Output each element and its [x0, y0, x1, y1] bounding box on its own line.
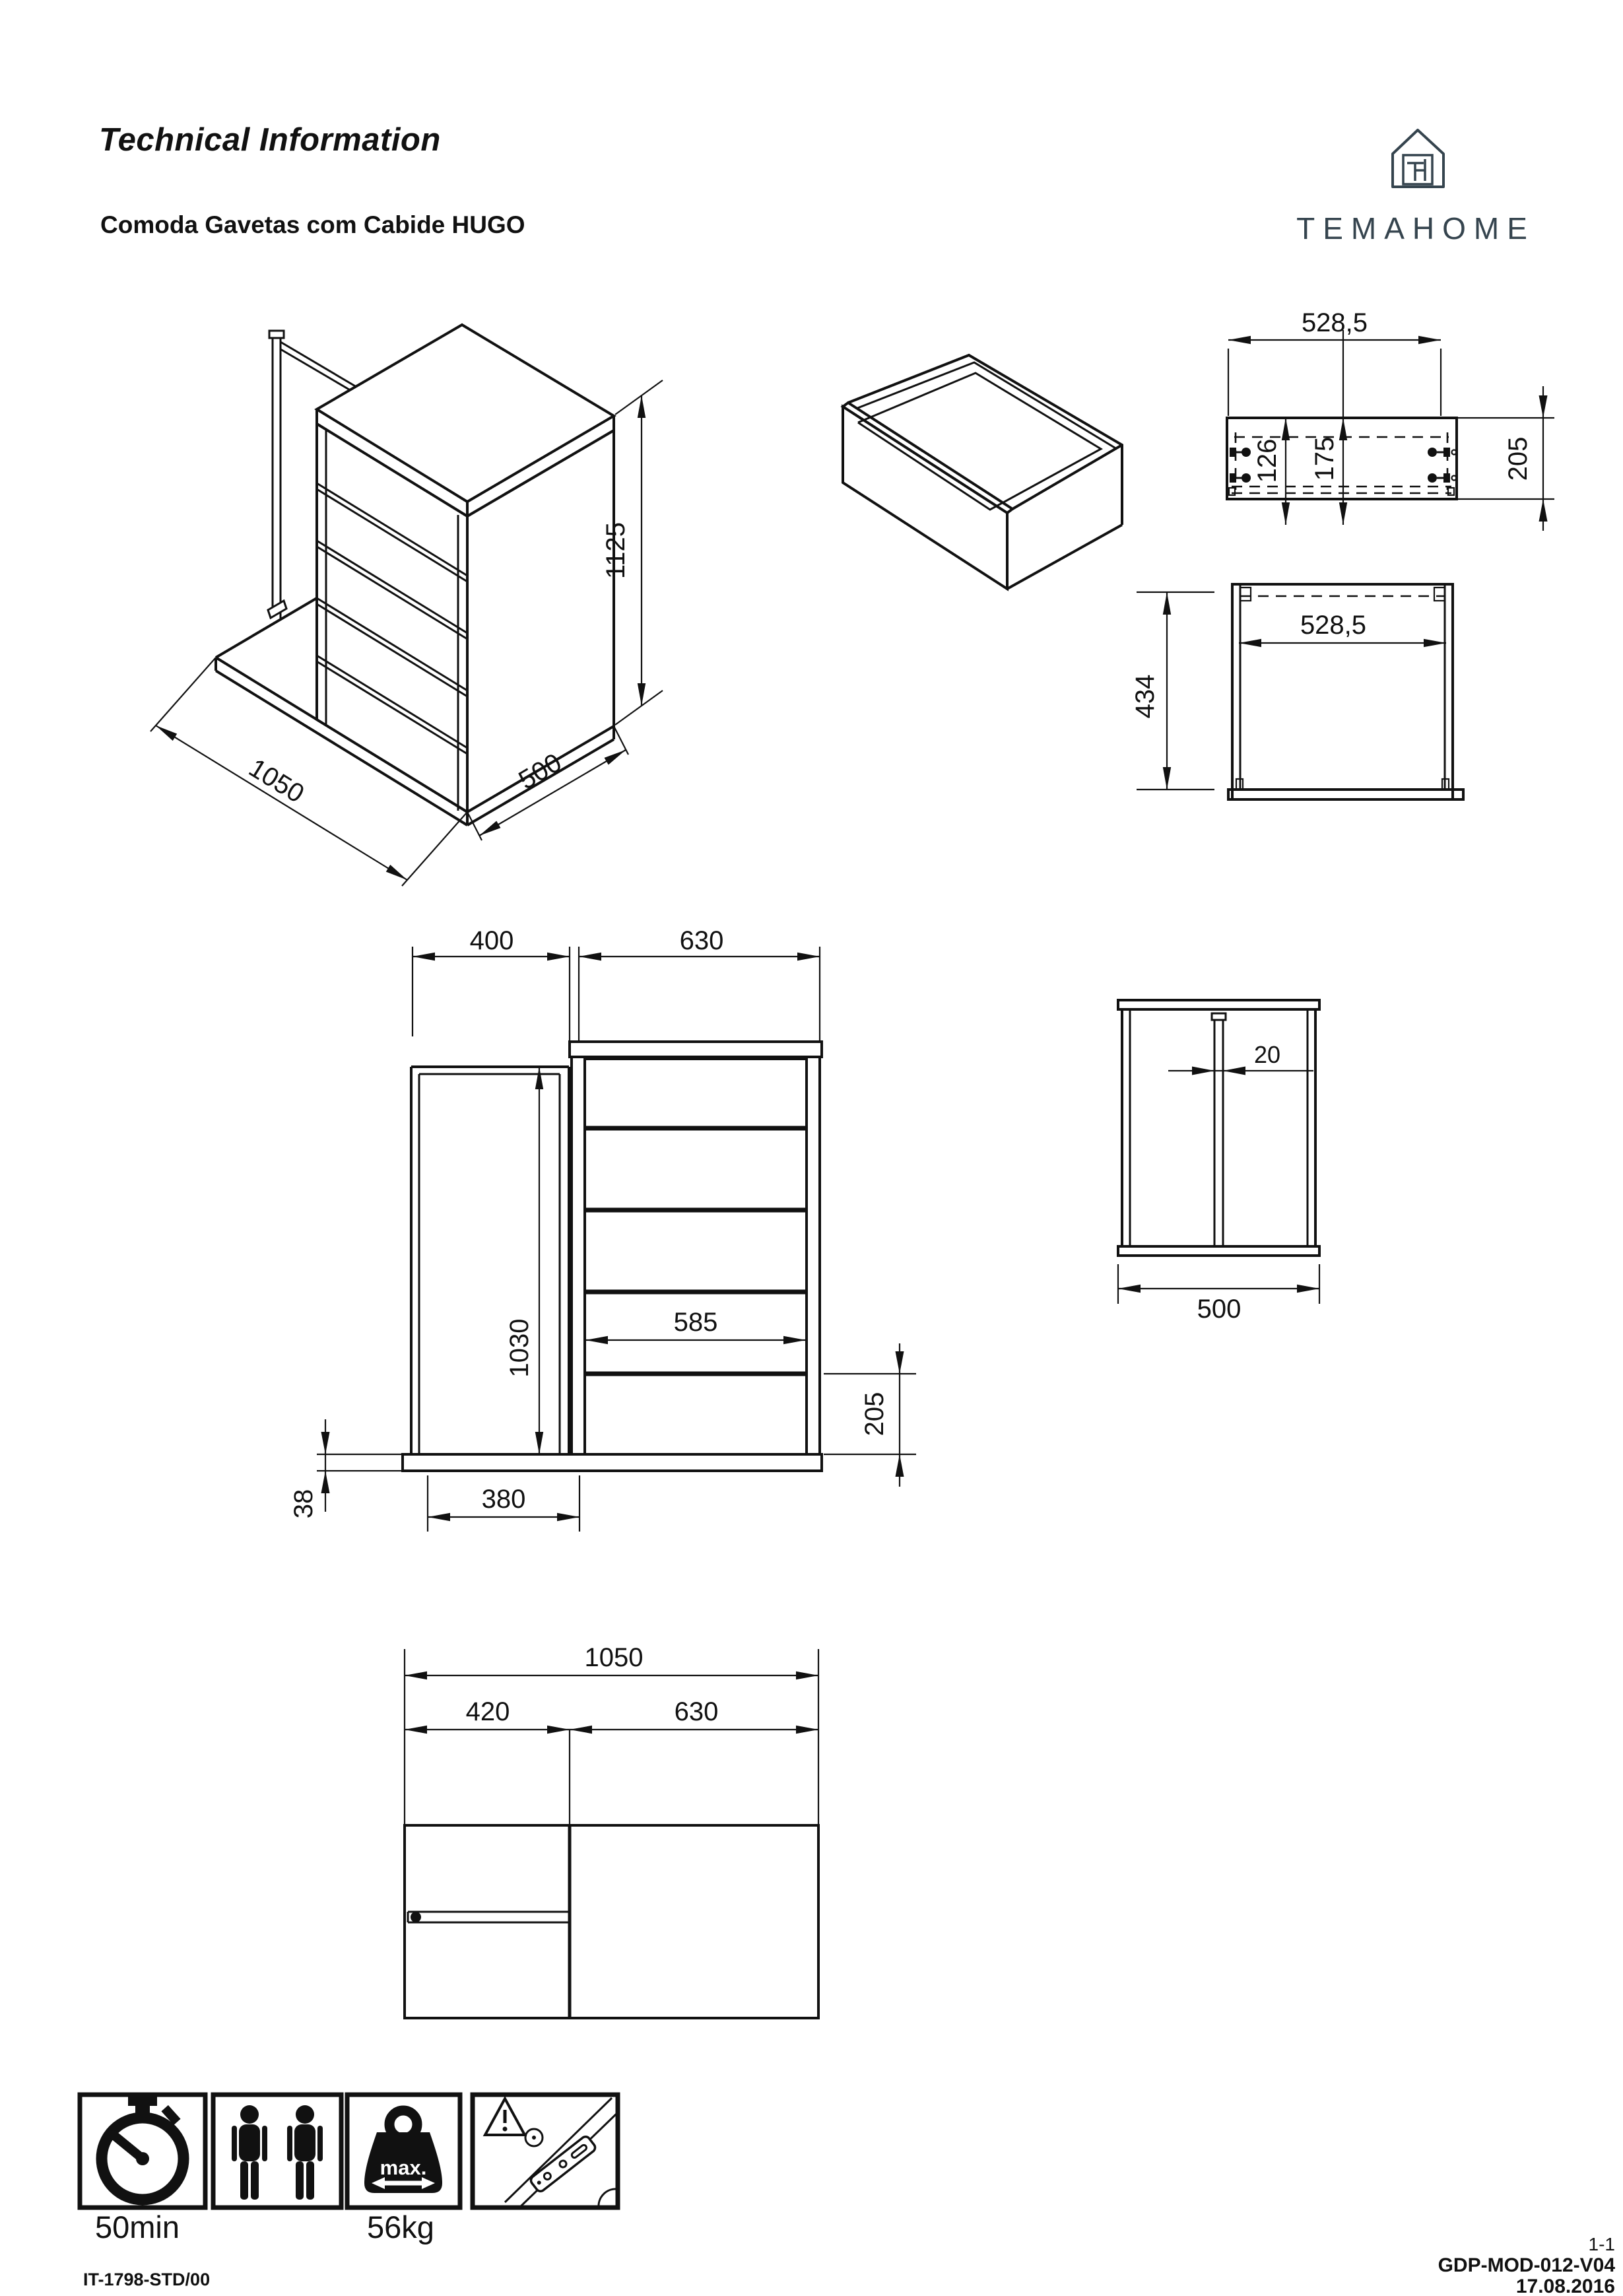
assembly-time-icon [78, 2093, 207, 2210]
revision-date: 17.08.2016 [1438, 2276, 1615, 2296]
max-load-icon: max. [345, 2093, 463, 2210]
dim-drawer-width: 528,5 [1302, 308, 1368, 337]
brand-name: TEMAHOME [1296, 211, 1535, 246]
document-code: IT-1798-STD/00 [83, 2270, 210, 2290]
person-icon [232, 2105, 267, 2200]
house-icon [1393, 130, 1443, 187]
isometric-assembly-view: 1125 1050 500 [92, 284, 673, 898]
dim-base-thickness: 38 [289, 1489, 318, 1519]
dim-rail-inner-height: 1030 [505, 1319, 534, 1378]
max-load-label: 56kg [367, 2209, 434, 2245]
dim-drawer-height: 205 [1504, 437, 1533, 481]
product-name: Comoda Gavetas com Cabide HUGO [100, 211, 525, 239]
dim-175: 175 [1310, 437, 1339, 481]
front-elevation-view: 400 630 1030 585 205 [277, 918, 950, 1551]
page-number: 1-1 [1438, 2234, 1615, 2255]
weight-icon: max. [364, 2110, 442, 2193]
dim-rail-section: 420 [466, 1697, 510, 1726]
dim-drawer-front-height: 205 [860, 1392, 889, 1436]
temahome-logo: TEMAHOME [1274, 112, 1558, 251]
page-title: Technical Information [99, 121, 441, 158]
dim-126: 126 [1253, 439, 1282, 483]
dim-chest-section: 630 [675, 1697, 719, 1726]
drawer-front-view: 528,5 126 175 205 [1122, 290, 1623, 555]
dim-rail-width: 400 [470, 926, 514, 955]
reference-code: GDP-MOD-012-V04 [1438, 2255, 1615, 2276]
wall-attachment-warning-icon [471, 2093, 620, 2210]
stopwatch-icon [102, 2097, 183, 2200]
footer-reference-block: 1-1 GDP-MOD-012-V04 17.08.2016 [1438, 2234, 1615, 2296]
person-icon [287, 2105, 323, 2200]
dim-depth: 500 [1197, 1295, 1242, 1324]
wall-bracket-illustration [505, 2098, 618, 2208]
isometric-drawer-view [818, 310, 1135, 601]
dim-drawer-width: 585 [674, 1308, 718, 1337]
technical-sheet-page: Technical Information Comoda Gavetas com… [0, 0, 1623, 2296]
warning-triangle-icon [485, 2099, 525, 2135]
dim-height: 1125 [601, 522, 630, 579]
dim-rail-thickness: 20 [1254, 1041, 1280, 1068]
side-elevation-view: 20 500 [1069, 951, 1386, 1347]
dim-inner-width: 528,5 [1300, 611, 1366, 640]
assembly-time-label: 50min [95, 2209, 180, 2245]
top-plan-view: 1050 420 630 [370, 1604, 871, 2027]
dim-total-width: 1050 [585, 1643, 644, 1672]
two-person-assembly-icon [211, 2093, 343, 2210]
max-badge: max. [380, 2156, 427, 2179]
dim-chest-width: 630 [680, 926, 724, 955]
dim-base-left-width: 380 [482, 1485, 526, 1514]
drawer-plan-view: 528,5 434 [1122, 561, 1544, 838]
dim-inner-depth: 434 [1131, 675, 1160, 719]
